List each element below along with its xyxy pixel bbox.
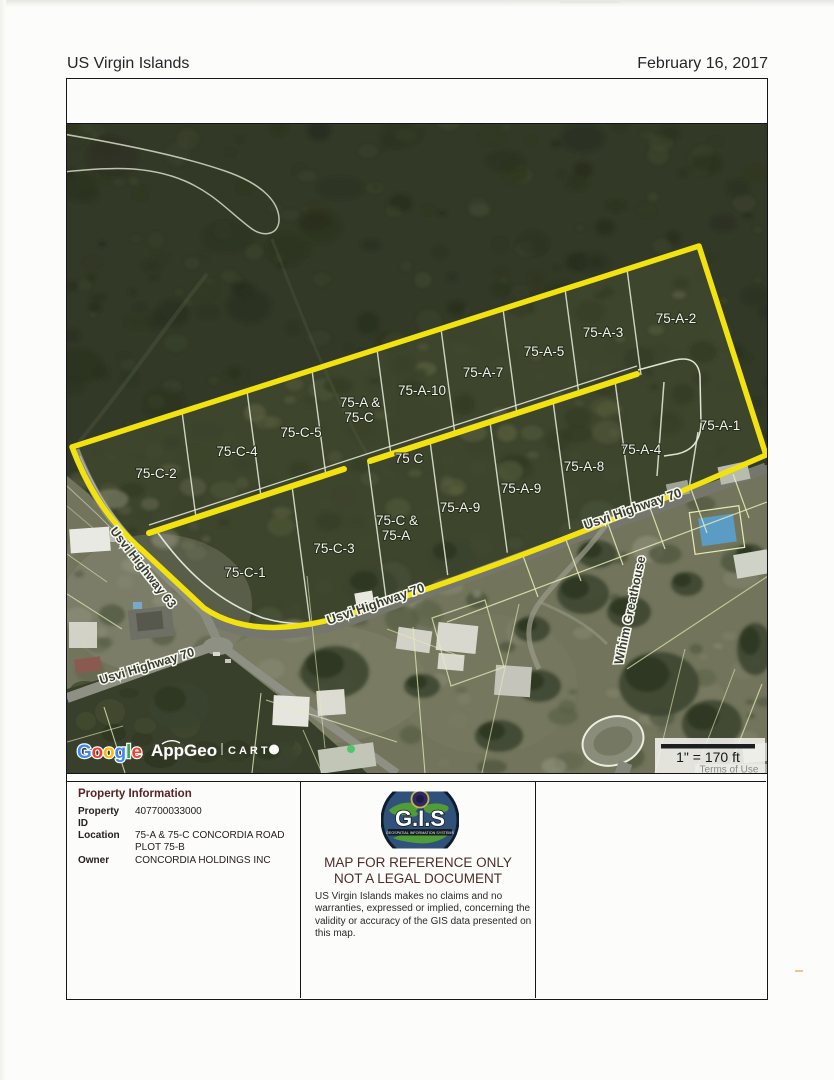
svg-text:75-A-9: 75-A-9: [501, 481, 542, 496]
svg-text:g: g: [115, 742, 127, 763]
svg-text:75-A-4: 75-A-4: [621, 442, 662, 457]
svg-text:75-C-3: 75-C-3: [313, 541, 354, 556]
svg-text:o: o: [92, 742, 104, 763]
svg-text:75-C &: 75-C &: [376, 513, 418, 528]
svg-text:GEOSPATIAL INFORMATION SYSTEMS: GEOSPATIAL INFORMATION SYSTEMS: [386, 831, 454, 835]
svg-text:75-C-1: 75-C-1: [224, 565, 265, 580]
svg-text:G.I.S: G.I.S: [395, 806, 445, 831]
svg-text:75-C-2: 75-C-2: [135, 466, 176, 481]
svg-text:75 C: 75 C: [395, 451, 424, 466]
svg-text:AppGeo: AppGeo: [151, 741, 217, 760]
svg-text:75-A-7: 75-A-7: [463, 365, 504, 380]
svg-text:75-C-4: 75-C-4: [216, 444, 258, 459]
svg-text:75-A: 75-A: [382, 528, 411, 543]
svg-text:75-A-8: 75-A-8: [564, 459, 605, 474]
svg-text:75-A-1: 75-A-1: [700, 418, 741, 433]
svg-text:75-A-5: 75-A-5: [524, 344, 565, 359]
svg-text:75-A-10: 75-A-10: [398, 383, 446, 398]
svg-text:75-A-2: 75-A-2: [656, 311, 697, 326]
svg-text:75-A &: 75-A &: [340, 395, 381, 410]
svg-text:G: G: [77, 742, 92, 763]
svg-text:75-C: 75-C: [344, 410, 374, 425]
svg-text:o: o: [103, 742, 115, 763]
svg-text:75-A-3: 75-A-3: [583, 325, 624, 340]
svg-text:Terms of Use: Terms of Use: [700, 765, 759, 774]
svg-text:e: e: [132, 742, 143, 763]
svg-text:l: l: [126, 742, 131, 763]
svg-text:75-C-5: 75-C-5: [280, 425, 321, 440]
svg-text:1" = 170 ft: 1" = 170 ft: [676, 749, 740, 765]
svg-text:75-A-9: 75-A-9: [440, 500, 481, 515]
svg-text:CART: CART: [228, 745, 271, 757]
